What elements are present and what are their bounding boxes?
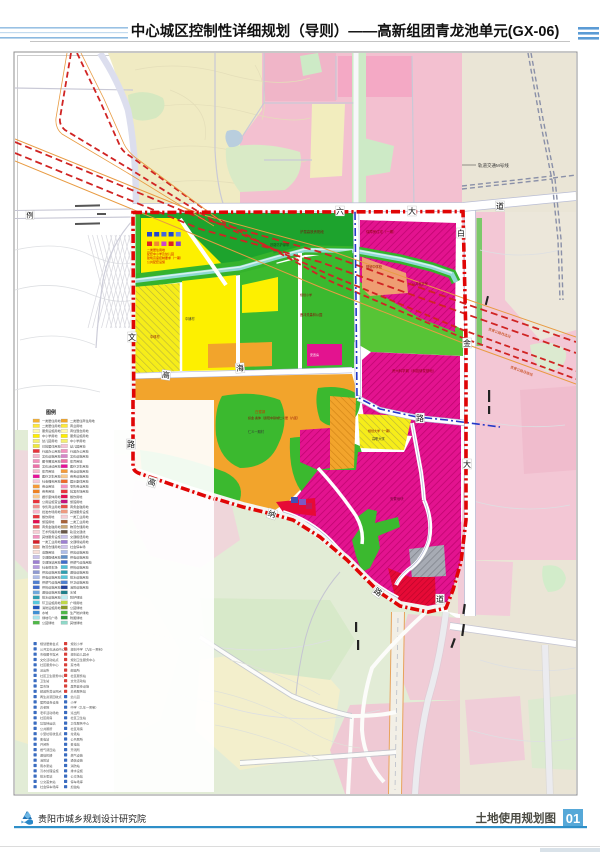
svg-text:安置地块: 安置地块 xyxy=(390,496,404,501)
svg-text:艺术传媒用地: 艺术传媒用地 xyxy=(42,529,61,534)
svg-text:仁义一期村: 仁义一期村 xyxy=(248,429,265,434)
svg-text:金: 金 xyxy=(463,338,471,348)
svg-text:排水设施用地: 排水设施用地 xyxy=(70,575,89,580)
svg-text:幼儿园用地: 幼儿园用地 xyxy=(42,438,57,443)
svg-text:行政办公用地: 行政办公用地 xyxy=(70,448,89,453)
svg-text:轨道交通线: 轨道交通线 xyxy=(70,529,85,534)
svg-text:变电站: 变电站 xyxy=(40,736,49,741)
svg-text:菜市场: 菜市场 xyxy=(40,683,49,688)
svg-text:通信设施用地: 通信设施用地 xyxy=(42,590,61,595)
svg-text:贵阳市城乡规划设计研究院: 贵阳市城乡规划设计研究院 xyxy=(38,813,146,824)
svg-text:消防设施用地: 消防设施用地 xyxy=(70,585,89,590)
svg-text:社会停车场: 社会停车场 xyxy=(70,544,85,549)
svg-text:鹿冲关森林公园: 鹿冲关森林公园 xyxy=(300,312,322,317)
svg-text:绿地与广场: 绿地与广场 xyxy=(42,615,57,620)
svg-text:市级图书馆点: 市级图书馆点 xyxy=(40,652,59,657)
svg-text:供电设施用地: 供电设施用地 xyxy=(70,554,89,559)
svg-text:供应设施用地: 供应设施用地 xyxy=(70,549,89,554)
svg-text:例: 例 xyxy=(27,211,34,220)
svg-text:行政办公用地: 行政办公用地 xyxy=(42,448,61,453)
svg-text:海: 海 xyxy=(236,363,245,374)
svg-text:交通枢纽用地: 交通枢纽用地 xyxy=(70,534,89,539)
svg-text:旅馆用地: 旅馆用地 xyxy=(42,519,54,524)
svg-text:公共租赁房: 公共租赁房 xyxy=(412,281,428,286)
svg-text:污水处理设施: 污水处理设施 xyxy=(40,768,59,773)
svg-text:一类居住用地: 一类居住用地 xyxy=(42,418,61,423)
svg-text:文化活动站: 文化活动站 xyxy=(71,678,86,683)
svg-text:文化活动用地: 文化活动用地 xyxy=(42,464,61,469)
svg-text:商业用地: 商业用地 xyxy=(42,484,54,489)
svg-text:通信设施用地: 通信设施用地 xyxy=(70,570,89,575)
svg-text:商务用地: 商务用地 xyxy=(42,489,54,494)
svg-text:文化设施用地: 文化设施用地 xyxy=(42,453,61,458)
svg-text:大: 大 xyxy=(463,459,471,469)
svg-text:派出所: 派出所 xyxy=(40,668,49,673)
svg-text:变电站: 变电站 xyxy=(71,742,80,747)
svg-text:环卫设施用地: 环卫设施用地 xyxy=(42,600,61,605)
svg-text:公园绿地: 公园绿地 xyxy=(42,620,54,625)
svg-text:土地使用规划图: 土地使用规划图 xyxy=(476,811,557,825)
svg-text:社会福利用地: 社会福利用地 xyxy=(42,479,61,484)
svg-text:水域: 水域 xyxy=(42,610,48,615)
svg-text:公共厕所: 公共厕所 xyxy=(71,736,83,741)
svg-text:白鹭湖: 白鹭湖 xyxy=(255,409,266,414)
svg-text:道: 道 xyxy=(496,201,504,211)
svg-text:规划居委会点: 规划居委会点 xyxy=(40,641,59,646)
svg-text:二类居住用地: 二类居住用地 xyxy=(42,423,61,428)
svg-text:公共配套设施: 公共配套设施 xyxy=(147,259,165,264)
svg-text:排水设施用地: 排水设施用地 xyxy=(42,595,61,600)
svg-text:社区服务站: 社区服务站 xyxy=(71,673,86,678)
svg-text:小学: 小学 xyxy=(71,699,77,704)
svg-text:道: 道 xyxy=(436,594,444,604)
svg-text:高: 高 xyxy=(161,369,170,380)
svg-text:图书展览用地: 图书展览用地 xyxy=(42,458,61,463)
svg-text:供电设施用地: 供电设施用地 xyxy=(42,575,61,580)
svg-text:医疗卫生用地: 医疗卫生用地 xyxy=(42,474,61,479)
svg-text:燃气调压站: 燃气调压站 xyxy=(40,747,55,752)
svg-text:中小学用地: 中小学用地 xyxy=(70,438,85,443)
svg-text:沪昆高铁贵阳段: 沪昆高铁贵阳段 xyxy=(300,229,324,234)
svg-text:公交首末站: 公交首末站 xyxy=(40,779,55,784)
svg-text:交通场站用地: 交通场站用地 xyxy=(42,559,61,564)
svg-text:安置房: 安置房 xyxy=(310,352,319,357)
svg-text:路: 路 xyxy=(416,413,424,423)
svg-text:规划中学校: 规划中学校 xyxy=(366,264,383,269)
svg-text:小型垃圾收集点: 小型垃圾收集点 xyxy=(40,731,62,736)
svg-text:餐饮用地: 餐饮用地 xyxy=(70,494,82,499)
svg-text:居民健身设施: 居民健身设施 xyxy=(40,699,59,704)
svg-text:娱乐康体用地: 娱乐康体用地 xyxy=(42,494,61,499)
svg-text:商务设施用地: 商务设施用地 xyxy=(70,474,89,479)
svg-text:环卫设施用地: 环卫设施用地 xyxy=(70,580,89,585)
svg-text:停车场库: 停车场库 xyxy=(71,779,83,784)
svg-text:公共厕所: 公共厕所 xyxy=(40,726,52,731)
svg-text:卫生站: 卫生站 xyxy=(40,678,49,683)
svg-text:供燃气设施用地: 供燃气设施用地 xyxy=(42,580,64,585)
svg-text:生产防护绿地: 生产防护绿地 xyxy=(70,610,89,615)
svg-text:其他服务设施: 其他服务设施 xyxy=(42,534,61,539)
svg-text:轨道交通M号线: 轨道交通M号线 xyxy=(478,162,509,169)
svg-text:中心城区控制性详细规划（导则）——高新组团青龙池单元(GX-: 中心城区控制性详细规划（导则）——高新组团青龙池单元(GX-06) xyxy=(131,22,560,40)
svg-text:文化设施用地: 文化设施用地 xyxy=(70,453,89,458)
svg-text:其他服务设施: 其他服务设施 xyxy=(70,509,89,514)
svg-text:垃圾站: 垃圾站 xyxy=(71,731,80,736)
svg-text:社区卫生站: 社区卫生站 xyxy=(71,715,86,720)
svg-text:垃圾转运站: 垃圾转运站 xyxy=(40,721,55,726)
svg-text:消防站: 消防站 xyxy=(40,758,49,763)
svg-text:邮政所: 邮政所 xyxy=(71,668,80,673)
svg-text:文: 文 xyxy=(128,332,136,342)
svg-text:图例: 图例 xyxy=(46,409,56,416)
svg-text:中学（九年一贯制）: 中学（九年一贯制） xyxy=(71,705,99,710)
svg-text:幼儿园: 幼儿园 xyxy=(71,694,80,699)
svg-text:防护绿地: 防护绿地 xyxy=(70,595,82,600)
svg-text:社会停车场: 社会停车场 xyxy=(42,564,57,569)
svg-text:规划幼儿园点: 规划幼儿园点 xyxy=(71,652,90,657)
svg-text:交通枢纽用地: 交通枢纽用地 xyxy=(42,554,61,559)
svg-text:社区卫生服务中心: 社区卫生服务中心 xyxy=(40,673,65,678)
svg-text:广场用地: 广场用地 xyxy=(70,600,82,605)
svg-text:公交场站: 公交场站 xyxy=(71,774,83,779)
svg-text:规划小学: 规划小学 xyxy=(71,641,83,646)
svg-text:服务设施用地: 服务设施用地 xyxy=(42,428,61,433)
svg-text:物流仓储用地: 物流仓储用地 xyxy=(70,524,89,529)
svg-text:水域: 水域 xyxy=(70,590,76,595)
svg-text:保障房住宅（一期）: 保障房住宅（一期） xyxy=(366,229,397,234)
svg-text:批发市场用地: 批发市场用地 xyxy=(70,489,89,494)
svg-text:医疗卫生用地: 医疗卫生用地 xyxy=(70,464,89,469)
svg-text:菜市场: 菜市场 xyxy=(71,662,80,667)
svg-text:排水设施: 排水设施 xyxy=(71,768,83,773)
svg-text:通信设施: 通信设施 xyxy=(71,758,83,763)
svg-text:娱乐康体用地: 娱乐康体用地 xyxy=(70,479,89,484)
svg-text:消防设施用地: 消防设施用地 xyxy=(42,605,61,610)
svg-text:服务设施用地: 服务设施用地 xyxy=(70,433,89,438)
svg-text:已批居住用地: 已批居住用地 xyxy=(42,443,61,448)
svg-text:燃气设施: 燃气设施 xyxy=(71,752,83,757)
svg-text:文化活动站点: 文化活动站点 xyxy=(40,657,59,662)
svg-text:织金·奥体（贵阳中铁城仁义居（六区）: 织金·奥体（贵阳中铁城仁义居（六区） xyxy=(248,415,300,420)
svg-text:商业用地: 商业用地 xyxy=(70,423,82,428)
svg-text:一类工业用地: 一类工业用地 xyxy=(42,539,61,544)
svg-text:开闭所: 开闭所 xyxy=(71,747,80,752)
svg-text:社区用房: 社区用房 xyxy=(40,715,52,720)
svg-text:雨水泵站: 雨水泵站 xyxy=(40,763,52,768)
svg-text:供热设施用地: 供热设施用地 xyxy=(42,585,61,590)
svg-text:社区用房: 社区用房 xyxy=(71,726,83,731)
svg-text:商住混合用地: 商住混合用地 xyxy=(70,428,89,433)
svg-text:一类工业用地: 一类工业用地 xyxy=(70,514,89,519)
svg-text:路: 路 xyxy=(127,439,135,449)
svg-text:消防站: 消防站 xyxy=(71,763,80,768)
svg-text:养老服务站: 养老服务站 xyxy=(71,689,86,694)
svg-text:老年活动场地: 老年活动场地 xyxy=(40,710,59,715)
svg-text:规划卫生服务中心: 规划卫生服务中心 xyxy=(71,657,96,662)
svg-text:批发市场用地: 批发市场用地 xyxy=(42,509,61,514)
svg-text:中铺村: 中铺村 xyxy=(185,316,195,321)
svg-text:社区服务中心: 社区服务中心 xyxy=(40,662,59,667)
svg-text:开闭所: 开闭所 xyxy=(40,742,49,747)
svg-text:供应设施用地: 供应设施用地 xyxy=(42,570,61,575)
svg-text:居民健身设施: 居民健身设施 xyxy=(71,683,90,688)
svg-text:通信机楼: 通信机楼 xyxy=(40,752,52,757)
svg-text:中小学用地: 中小学用地 xyxy=(42,433,57,438)
svg-text:零售商业用地: 零售商业用地 xyxy=(42,504,61,509)
svg-text:二类居住商住用地: 二类居住商住用地 xyxy=(70,418,95,423)
svg-text:物流仓储用地: 物流仓储用地 xyxy=(42,544,61,549)
svg-text:贵州科学城（科技研发基地）: 贵州科学城（科技研发基地） xyxy=(392,368,436,373)
svg-text:规划大学（一期）: 规划大学（一期） xyxy=(368,428,392,433)
svg-text:规划小学: 规划小学 xyxy=(300,292,312,297)
svg-text:社会停车场库: 社会停车场库 xyxy=(40,784,59,789)
svg-text:高职大学: 高职大学 xyxy=(372,436,385,441)
svg-text:幼儿园用地: 幼儿园用地 xyxy=(70,443,85,448)
svg-text:派出所: 派出所 xyxy=(71,710,80,715)
svg-text:其他绿地: 其他绿地 xyxy=(70,620,82,625)
svg-text:邮政所营业网点: 邮政所营业网点 xyxy=(40,689,62,694)
svg-text:01: 01 xyxy=(566,811,580,826)
svg-text:白: 白 xyxy=(457,228,465,238)
svg-text:六: 六 xyxy=(336,206,344,216)
svg-text:再生资源回收点: 再生资源回收点 xyxy=(40,694,62,699)
svg-text:养老院: 养老院 xyxy=(40,705,49,710)
svg-text:加油站: 加油站 xyxy=(71,784,80,789)
svg-text:卫生服务中心: 卫生服务中心 xyxy=(71,721,90,726)
svg-text:道路用地: 道路用地 xyxy=(42,549,54,554)
svg-text:商务金融用地: 商务金融用地 xyxy=(42,524,61,529)
svg-text:体育用地: 体育用地 xyxy=(42,469,54,474)
svg-text:铁路防护绿带: 铁路防护绿带 xyxy=(270,242,290,247)
svg-text:规划中学（九年一贯制）: 规划中学（九年一贯制） xyxy=(71,646,105,651)
svg-text:二类工业用地: 二类工业用地 xyxy=(70,519,89,524)
svg-text:公园绿地: 公园绿地 xyxy=(70,605,82,610)
svg-text:中坝村: 中坝村 xyxy=(150,334,160,339)
svg-text:大: 大 xyxy=(408,206,416,216)
svg-text:交通场站用地: 交通场站用地 xyxy=(70,539,89,544)
svg-text:公共文化活动中心点: 公共文化活动中心点 xyxy=(40,646,68,651)
svg-text:餐饮用地: 餐饮用地 xyxy=(42,514,54,519)
svg-text:旅馆用地: 旅馆用地 xyxy=(70,499,82,504)
svg-text:商务金融用地: 商务金融用地 xyxy=(70,504,89,509)
svg-text:排水泵站: 排水泵站 xyxy=(40,774,52,779)
svg-text:商业设施用地: 商业设施用地 xyxy=(70,469,89,474)
svg-text:附属绿地: 附属绿地 xyxy=(70,615,82,620)
svg-text:零售商业用地: 零售商业用地 xyxy=(70,484,89,489)
svg-text:体育用地: 体育用地 xyxy=(70,458,82,463)
svg-text:供燃气设施用地: 供燃气设施用地 xyxy=(70,559,92,564)
svg-text:供热设施用地: 供热设施用地 xyxy=(70,564,89,569)
